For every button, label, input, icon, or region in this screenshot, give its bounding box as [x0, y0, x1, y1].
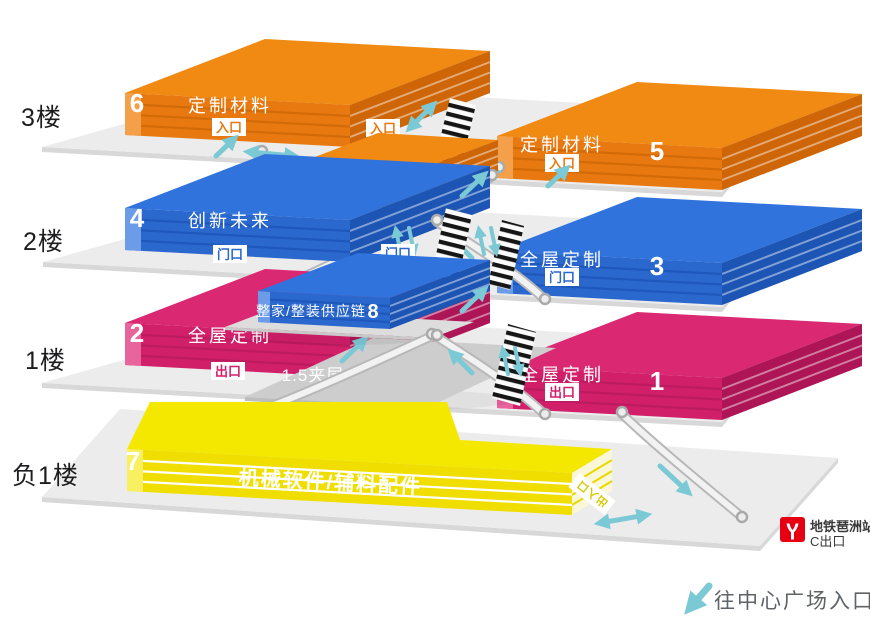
hall-5-number: 5 — [650, 136, 664, 166]
escalator-hood — [432, 215, 442, 225]
hall-3-block: 全屋定制 3 门口 — [497, 197, 862, 305]
metro-station-name: 地铁琶洲站 — [810, 519, 870, 534]
plaza-entrance-label: 往中心广场入口 — [714, 590, 870, 613]
metro-exit-name: C出口 — [810, 534, 845, 549]
down-left-arrow — [690, 586, 709, 608]
hall-2-number: 2 — [130, 318, 144, 348]
hall-5-name: 定制材料 — [520, 135, 604, 155]
hall-6-name: 定制材料 — [188, 96, 272, 116]
floor-level-labels: 3楼 2楼 1楼 负1楼 — [12, 104, 79, 490]
escalator-hood — [737, 512, 747, 522]
escalator-hood — [617, 407, 627, 417]
hall-4-number: 4 — [130, 203, 145, 233]
hall-3-name: 全屋定制 — [520, 250, 604, 270]
escalator-hood — [540, 294, 550, 304]
level-label-1f: 1楼 — [25, 347, 66, 375]
hall-5-block: 定制材料 5 入口 — [497, 82, 862, 190]
hall-1-number: 1 — [650, 366, 664, 396]
floor-guide-svg: 6 定制材料 入口 定制材料 5 入口 入口 — [0, 0, 870, 632]
floor-guide-map: 6 定制材料 入口 定制材料 5 入口 入口 — [0, 0, 870, 632]
hall-3-number: 3 — [650, 251, 664, 281]
level-label-3f: 3楼 — [21, 104, 62, 132]
hall-7-number: 7 — [126, 446, 140, 476]
escalator-hood — [432, 330, 442, 340]
level-label-b1: 负1楼 — [12, 462, 79, 490]
plaza-entrance-note: 往中心广场入口 — [690, 586, 870, 613]
level-label-2f: 2楼 — [23, 228, 64, 256]
hall-1-door-label: 出口 — [549, 385, 575, 400]
hall-4-door-label: 门口 — [217, 247, 243, 262]
hall-6-door-label: 入口 — [216, 120, 242, 135]
metro-exit-badge: 地铁琶洲站 C出口 — [780, 517, 870, 549]
hall-6-number: 6 — [130, 88, 144, 118]
escalator-hood — [540, 409, 550, 419]
hall-8-number: 8 — [367, 301, 378, 323]
hall-1-block: 全屋定制 1 出口 — [497, 312, 862, 420]
hall-2-door-label: 出口 — [215, 364, 241, 379]
hall-8-name: 整家/整装供应链 — [256, 303, 366, 319]
hall-4-name: 创新未来 — [188, 211, 272, 231]
hall-5-door-label: 入口 — [549, 156, 575, 171]
hall-3-door-label: 门口 — [549, 270, 575, 285]
hall-1-name: 全屋定制 — [520, 365, 604, 385]
